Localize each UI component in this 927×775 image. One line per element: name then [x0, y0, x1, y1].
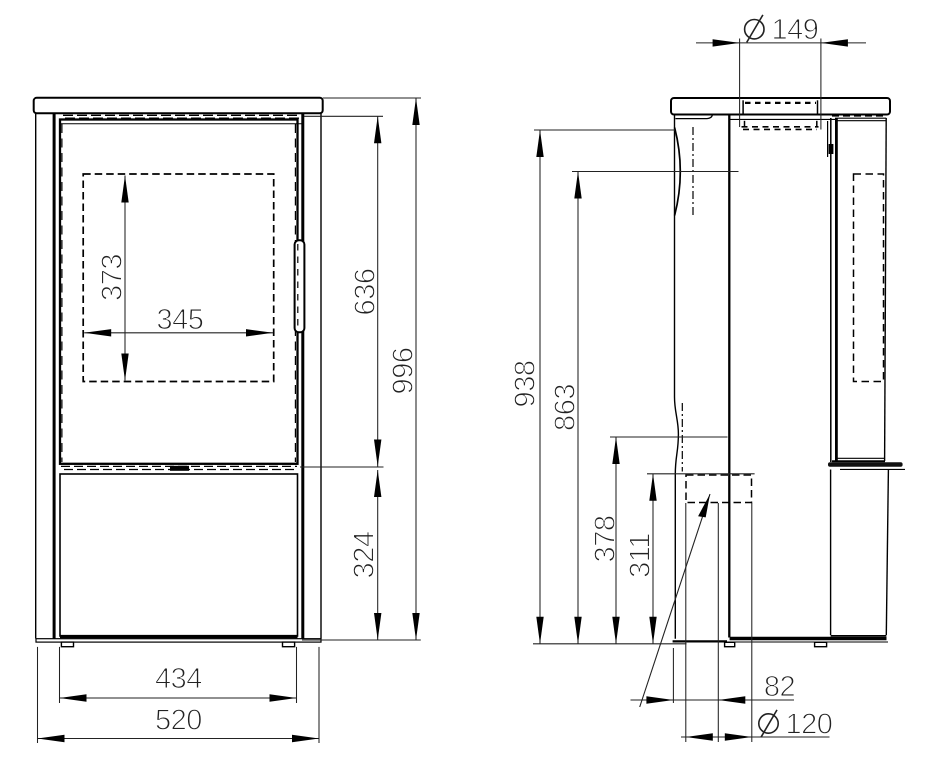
svg-text:434: 434 [155, 663, 202, 695]
svg-text:863: 863 [550, 384, 582, 431]
svg-text:938: 938 [510, 361, 542, 408]
svg-text:996: 996 [388, 348, 420, 395]
svg-text:149: 149 [772, 14, 819, 46]
svg-text:311: 311 [625, 533, 657, 578]
svg-text:520: 520 [155, 705, 202, 737]
svg-text:120: 120 [786, 709, 833, 741]
svg-text:378: 378 [590, 516, 622, 563]
svg-text:373: 373 [97, 254, 129, 301]
svg-text:82: 82 [764, 671, 795, 703]
svg-text:345: 345 [157, 304, 204, 336]
svg-text:324: 324 [349, 531, 381, 578]
svg-text:636: 636 [350, 269, 382, 316]
